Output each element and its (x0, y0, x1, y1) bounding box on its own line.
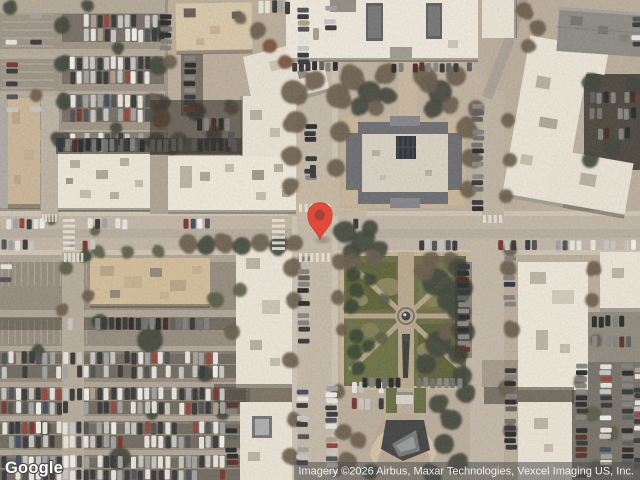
svg-text:Google: Google (5, 459, 63, 477)
svg-text:Imagery ©2026 Airbus, Maxar Te: Imagery ©2026 Airbus, Maxar Technologies… (298, 466, 634, 478)
